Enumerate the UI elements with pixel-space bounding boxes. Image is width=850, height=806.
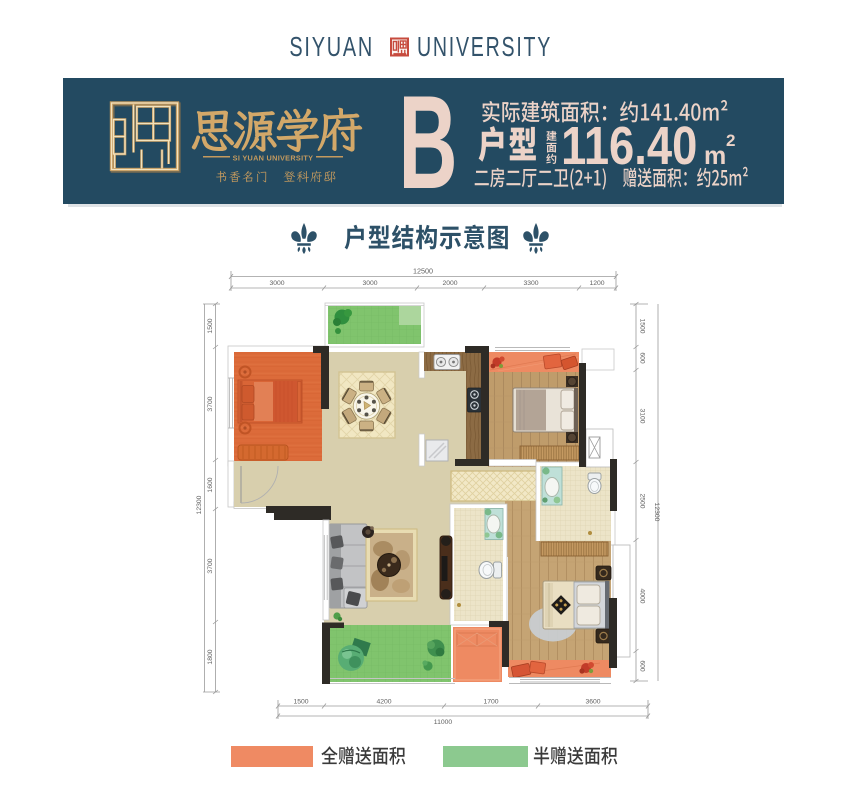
- svg-text:12300: 12300: [196, 495, 203, 514]
- svg-text:3000: 3000: [269, 280, 284, 287]
- svg-text:12500: 12500: [413, 267, 433, 276]
- svg-text:B: B: [399, 69, 458, 217]
- svg-text:SI YUAN UNIVERSITY: SI YUAN UNIVERSITY: [233, 154, 314, 163]
- svg-text:2500: 2500: [639, 493, 646, 508]
- svg-text:3300: 3300: [523, 280, 538, 287]
- svg-text:1500: 1500: [639, 318, 646, 333]
- svg-text:11000: 11000: [434, 719, 453, 726]
- svg-text:12300: 12300: [653, 503, 660, 522]
- svg-text:600: 600: [639, 660, 646, 672]
- svg-text:1700: 1700: [483, 699, 498, 706]
- svg-text:2000: 2000: [442, 280, 457, 287]
- svg-text:1800: 1800: [207, 649, 214, 664]
- svg-text:SIYUAN: SIYUAN: [289, 32, 374, 63]
- svg-text:1500: 1500: [207, 318, 214, 333]
- svg-text:3700: 3700: [207, 558, 214, 573]
- svg-text:4000: 4000: [639, 588, 646, 603]
- svg-text:116.40: 116.40: [561, 115, 697, 176]
- svg-text:3100: 3100: [639, 408, 646, 423]
- svg-text:2: 2: [726, 131, 735, 150]
- svg-text:600: 600: [639, 352, 646, 364]
- svg-text:UNIVERSITY: UNIVERSITY: [417, 32, 552, 63]
- svg-text:1500: 1500: [293, 699, 308, 706]
- svg-text:3600: 3600: [585, 699, 600, 706]
- svg-text:1200: 1200: [589, 280, 604, 287]
- svg-text:m: m: [704, 142, 726, 170]
- svg-text:3000: 3000: [362, 280, 377, 287]
- svg-text:3700: 3700: [207, 396, 214, 411]
- svg-text:1600: 1600: [207, 477, 214, 492]
- svg-text:4200: 4200: [376, 699, 391, 706]
